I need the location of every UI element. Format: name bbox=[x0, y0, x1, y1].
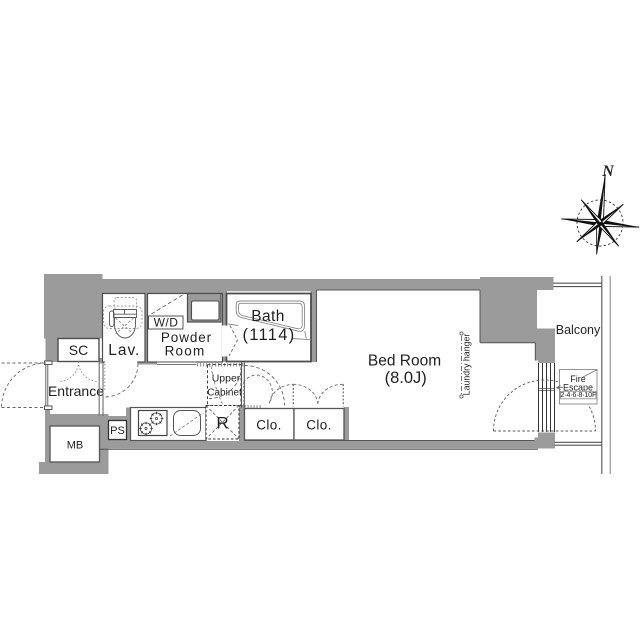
svg-text:R: R bbox=[216, 414, 228, 433]
svg-text:Balcony: Balcony bbox=[556, 323, 601, 337]
svg-text:Cabinet: Cabinet bbox=[207, 388, 242, 399]
svg-text:MB: MB bbox=[67, 440, 84, 452]
svg-text:Entrance: Entrance bbox=[48, 383, 104, 399]
svg-text:2·4·6·8·10F: 2·4·6·8·10F bbox=[560, 390, 597, 399]
svg-text:Bath: Bath bbox=[251, 308, 285, 325]
svg-text:Bed Room: Bed Room bbox=[368, 353, 441, 370]
svg-text:Laundry hanger: Laundry hanger bbox=[462, 334, 472, 396]
svg-text:(1114): (1114) bbox=[242, 326, 295, 344]
svg-text:Lav.: Lav. bbox=[108, 342, 140, 359]
svg-text:SC: SC bbox=[69, 342, 88, 358]
svg-text:Clo.: Clo. bbox=[306, 418, 332, 433]
svg-text:Upper: Upper bbox=[212, 373, 241, 385]
svg-text:W/D: W/D bbox=[154, 316, 179, 330]
svg-text:(8.0J): (8.0J) bbox=[385, 369, 427, 387]
svg-text:N: N bbox=[601, 163, 615, 180]
svg-text:Clo.: Clo. bbox=[256, 418, 282, 433]
svg-text:Room: Room bbox=[165, 344, 206, 359]
svg-text:PS: PS bbox=[110, 425, 125, 437]
